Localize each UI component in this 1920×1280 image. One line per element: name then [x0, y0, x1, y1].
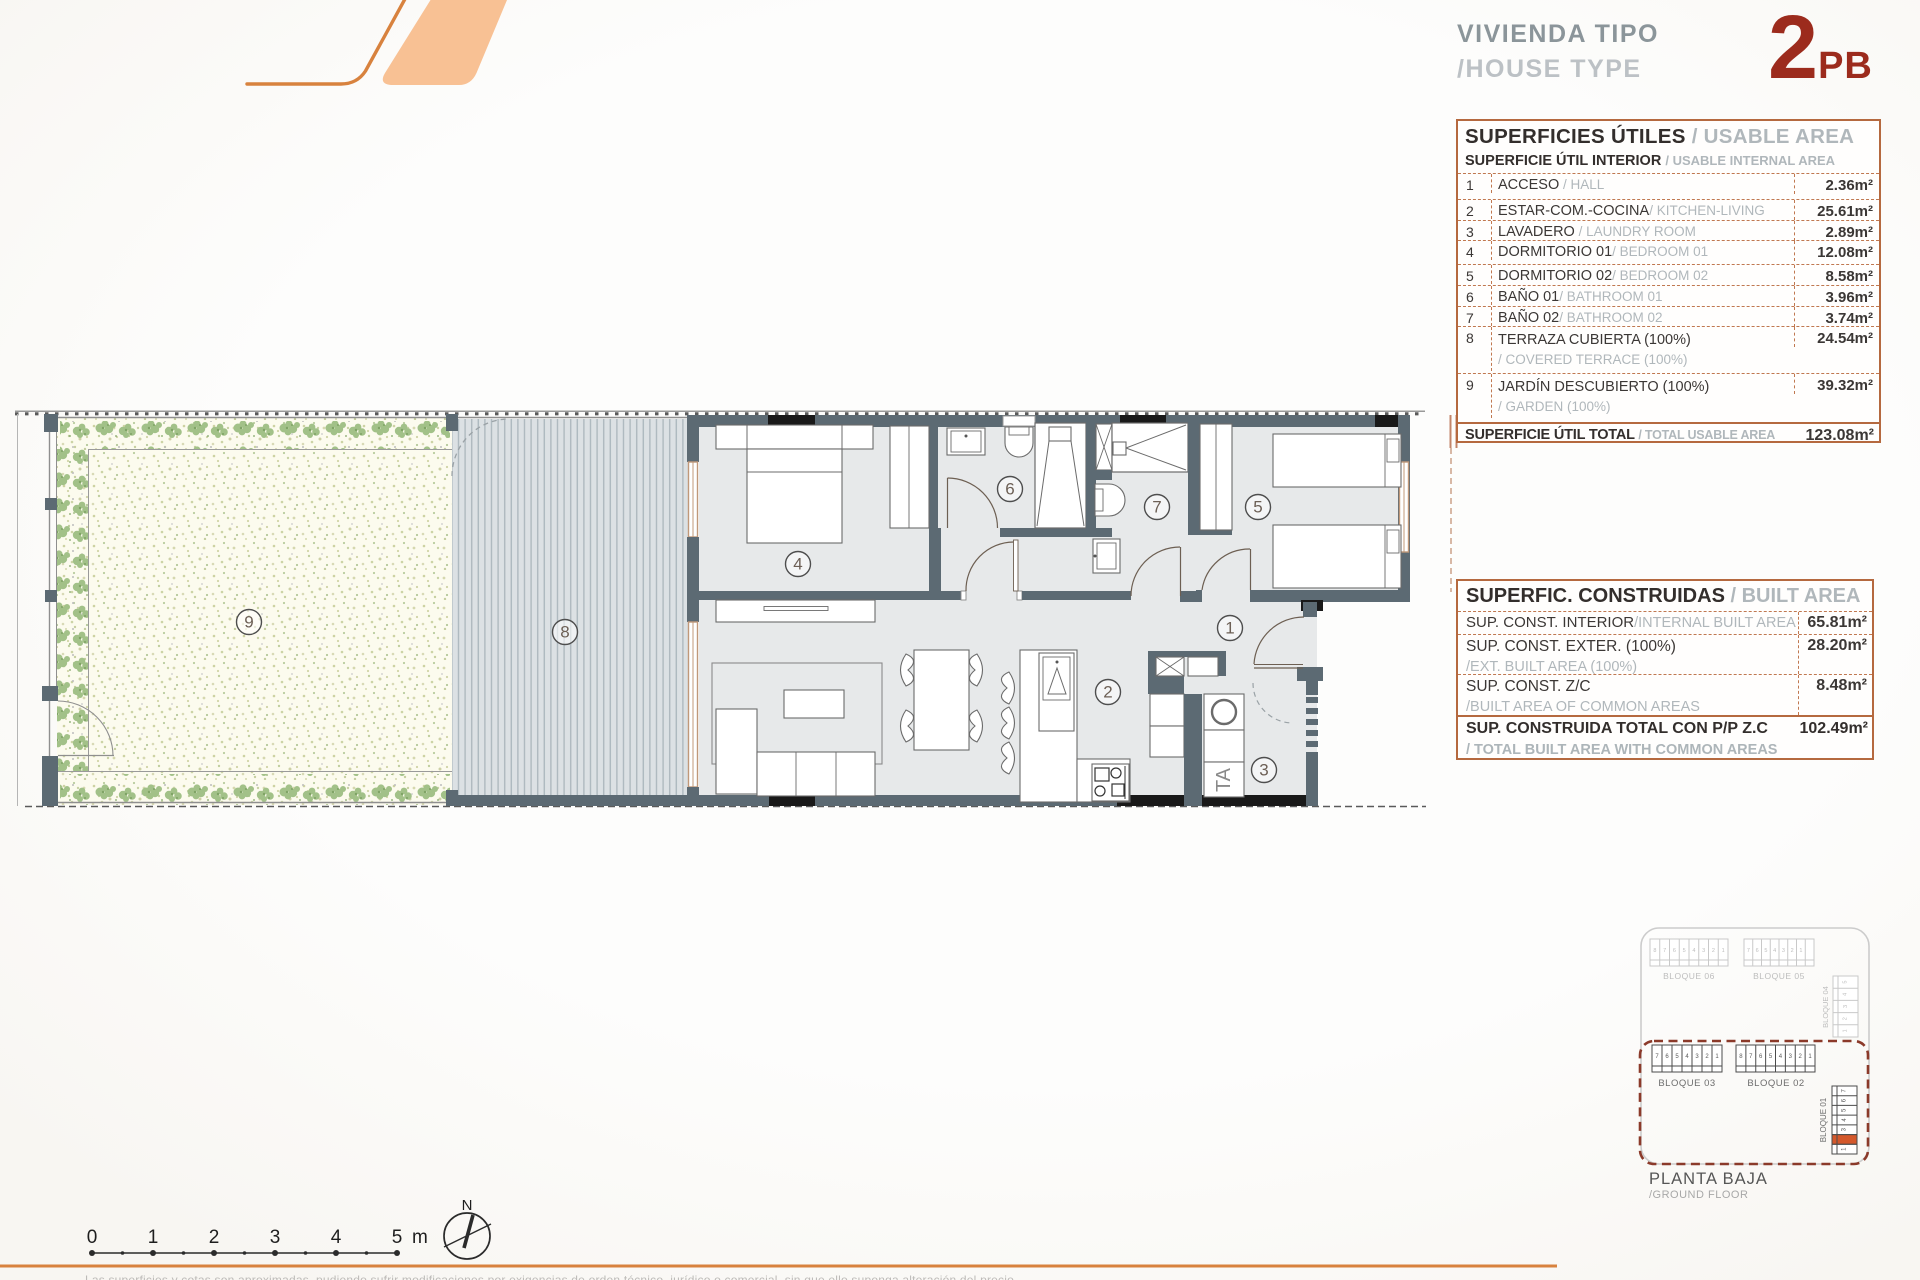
svg-text:BLOQUE 02: BLOQUE 02 [1747, 1078, 1804, 1089]
svg-text:4: 4 [1843, 993, 1849, 996]
svg-text:8: 8 [1653, 948, 1656, 954]
svg-text:7: 7 [1663, 948, 1666, 954]
svg-text:3: 3 [1259, 761, 1268, 780]
svg-text:4: 4 [1692, 948, 1695, 954]
svg-text:6: 6 [1673, 948, 1676, 954]
svg-text:1: 1 [1843, 1029, 1849, 1032]
svg-text:2: 2 [1103, 683, 1112, 702]
svg-text:1: 1 [1722, 948, 1725, 954]
svg-text:2: 2 [209, 1227, 220, 1248]
svg-text:5: 5 [1843, 981, 1849, 984]
svg-text:2: 2 [1712, 948, 1715, 954]
svg-text:1: 1 [1799, 948, 1802, 954]
svg-text:0: 0 [87, 1227, 98, 1248]
svg-text:1: 1 [148, 1227, 159, 1248]
svg-text:8: 8 [560, 623, 569, 642]
svg-text:5: 5 [1764, 948, 1767, 954]
svg-text:BLOQUE 03: BLOQUE 03 [1658, 1078, 1715, 1089]
svg-text:BLOQUE 06: BLOQUE 06 [1663, 971, 1715, 981]
svg-text:BLOQUE 01: BLOQUE 01 [1819, 1097, 1828, 1142]
svg-text:2: 2 [1791, 948, 1794, 954]
svg-text:4: 4 [793, 555, 802, 574]
svg-text:PLANTA BAJA: PLANTA BAJA [1649, 1170, 1768, 1188]
svg-text:3: 3 [1843, 1005, 1849, 1008]
svg-text:1: 1 [1225, 619, 1234, 638]
svg-text:BLOQUE 05: BLOQUE 05 [1753, 971, 1805, 981]
svg-text:7: 7 [1747, 948, 1750, 954]
svg-text:9: 9 [244, 613, 253, 632]
svg-text:3: 3 [1702, 948, 1705, 954]
svg-text:m: m [412, 1227, 428, 1248]
svg-text:TA: TA [1213, 767, 1235, 792]
svg-text:BLOQUE 04: BLOQUE 04 [1821, 986, 1830, 1028]
svg-text:6: 6 [1005, 480, 1014, 499]
svg-text:4: 4 [1773, 948, 1776, 954]
svg-text:7: 7 [1152, 498, 1161, 517]
svg-text:3: 3 [270, 1227, 281, 1248]
svg-text:4: 4 [331, 1227, 342, 1248]
svg-text:N: N [462, 1197, 473, 1214]
svg-text:2: 2 [1843, 1017, 1849, 1020]
svg-text:6: 6 [1756, 948, 1759, 954]
svg-text:5: 5 [1253, 498, 1262, 517]
svg-text:3: 3 [1782, 948, 1785, 954]
svg-text:5: 5 [392, 1227, 403, 1248]
svg-text:/GROUND FLOOR: /GROUND FLOOR [1649, 1189, 1748, 1201]
svg-text:5: 5 [1683, 948, 1686, 954]
